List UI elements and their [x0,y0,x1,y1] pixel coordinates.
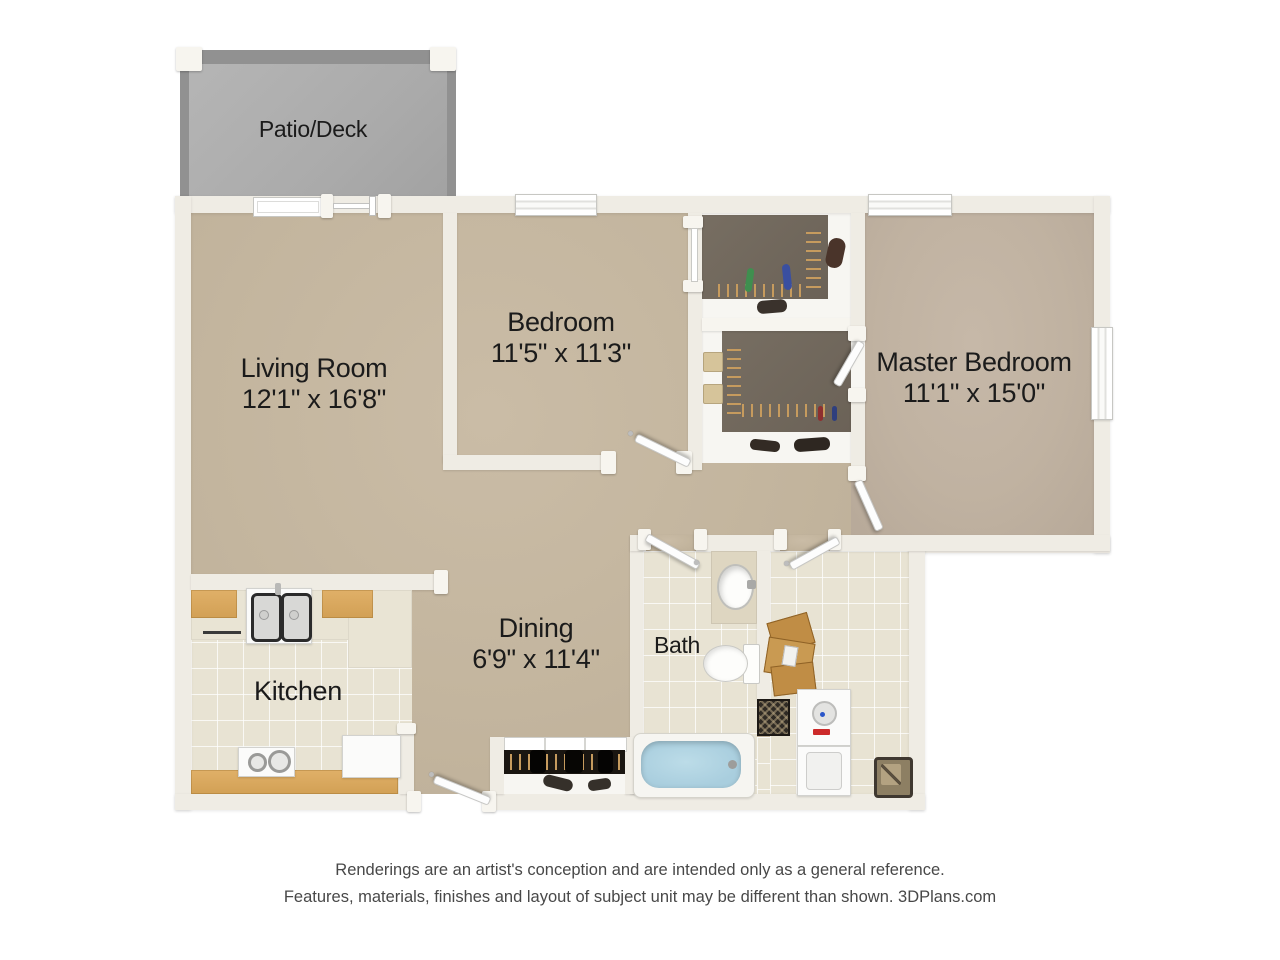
master-bedroom-side-window [1091,327,1113,420]
stove-burner-large [268,750,291,773]
laundry-basket-clothes [881,764,901,785]
bifold-closet-door [691,228,698,282]
bedroom-door-knob [628,431,633,436]
patio-slider-cap-right [378,194,391,218]
kitchen-north-wall [191,574,447,590]
bedroom-wall-end-cap [601,451,616,474]
kitchen-sink-drain-left [259,610,269,620]
bedroom-label: Bedroom 11'5" x 11'3" [491,307,631,369]
toilet-bowl [703,645,748,682]
bath-door-knob [694,560,699,565]
bedroom-south-wall [443,455,613,470]
kitchen-wall-end-cap [434,570,448,594]
bedroom-closet-hangers-right [806,226,821,288]
washer-button [813,729,830,735]
kitchen-sink-drain-right [289,610,299,620]
patio-label: Patio/Deck [259,116,367,142]
patio-slider-handle [369,196,376,216]
master-closet-hangers-left [727,342,741,414]
master-bedroom-top-window [868,194,952,216]
bathtub-basin [641,741,741,788]
outer-wall-left [175,196,191,810]
bedroom-west-wall [443,213,457,463]
dryer-lid [806,752,842,790]
shoes-master-closet-2 [794,437,831,452]
hanging-garment-red [818,406,823,421]
kitchen-cabinet-left [191,590,237,618]
master-closet-door-cap-top [848,326,866,341]
entry-cap-left [407,791,421,812]
bath-door-cap-right [694,529,707,550]
living-room-name: Living Room [241,353,388,384]
storage-box-2 [703,384,723,404]
bath-label: Bath [654,632,700,658]
master-bedroom-dimensions: 11'1" x 15'0" [876,378,1071,409]
disclaimer: Renderings are an artist's conception an… [284,857,996,911]
patio-post-right [430,47,456,71]
bifold-cap-top [683,216,703,228]
living-room-label: Living Room 12'1" x 16'8" [241,353,388,415]
kitchen-label: Kitchen [254,676,342,707]
dining-dimensions: 6'9" x 11'4" [472,644,599,675]
bedroom-dimensions: 11'5" x 11'3" [491,338,631,369]
floor-plan-canvas: Patio/Deck [0,0,1280,960]
outer-wall-bottom-left [175,794,415,810]
refrigerator [342,735,401,778]
washer-knob-dot [820,712,825,717]
patio-wall-right [447,50,456,200]
disclaimer-line-2: Features, materials, finishes and layout… [284,884,996,911]
laundry-hamper [757,699,790,736]
closet-divider-wall [702,318,851,331]
kitchen-towel-bar [203,631,241,634]
hanging-garment-navy [832,406,837,421]
bath-sink-faucet [747,580,756,589]
master-bedroom-name: Master Bedroom [876,347,1071,378]
stove-burner-small [248,753,267,772]
kitchen-faucet [275,583,281,595]
disclaimer-line-1: Renderings are an artist's conception an… [284,857,996,884]
storage-box-1 [703,352,723,372]
bathtub-faucet [728,760,737,769]
dining-name: Dining [472,613,599,644]
patio-wall-left [180,50,189,200]
master-door-cap [848,466,866,481]
master-closet-door-cap-bottom [848,388,866,402]
kitchen-cabinet-right [322,590,373,618]
patio-slider-cap-mid [321,194,333,218]
living-room-dimensions: 12'1" x 16'8" [241,384,388,415]
patio-post-left [176,47,202,71]
master-west-wall [851,213,865,337]
coat-closet-garment-1 [530,750,546,773]
bedroom-name: Bedroom [491,307,631,338]
dining-label: Dining 6'9" x 11'4" [472,613,599,675]
laundry-door-knob [784,561,789,566]
patio-wall-top [180,50,456,64]
coat-closet-garment-2 [565,750,583,773]
laundry-door-cap-left [774,529,787,550]
coat-closet-garment-3 [598,750,613,773]
patio-slider-panel [253,197,323,217]
tub-alcove-floor [757,737,770,794]
patio-slider-track [333,203,373,209]
entry-door-knob [429,772,434,777]
coat-closet-left-wall [490,737,504,794]
shoes-bedroom-closet [756,299,787,315]
bedroom-window [515,194,597,216]
kitchen-stub-cap [397,723,416,734]
master-bedroom-label: Master Bedroom 11'1" x 15'0" [876,347,1071,409]
kitchen-east-wall-stub [400,728,414,794]
master-closet-hangers-bottom [742,404,830,417]
